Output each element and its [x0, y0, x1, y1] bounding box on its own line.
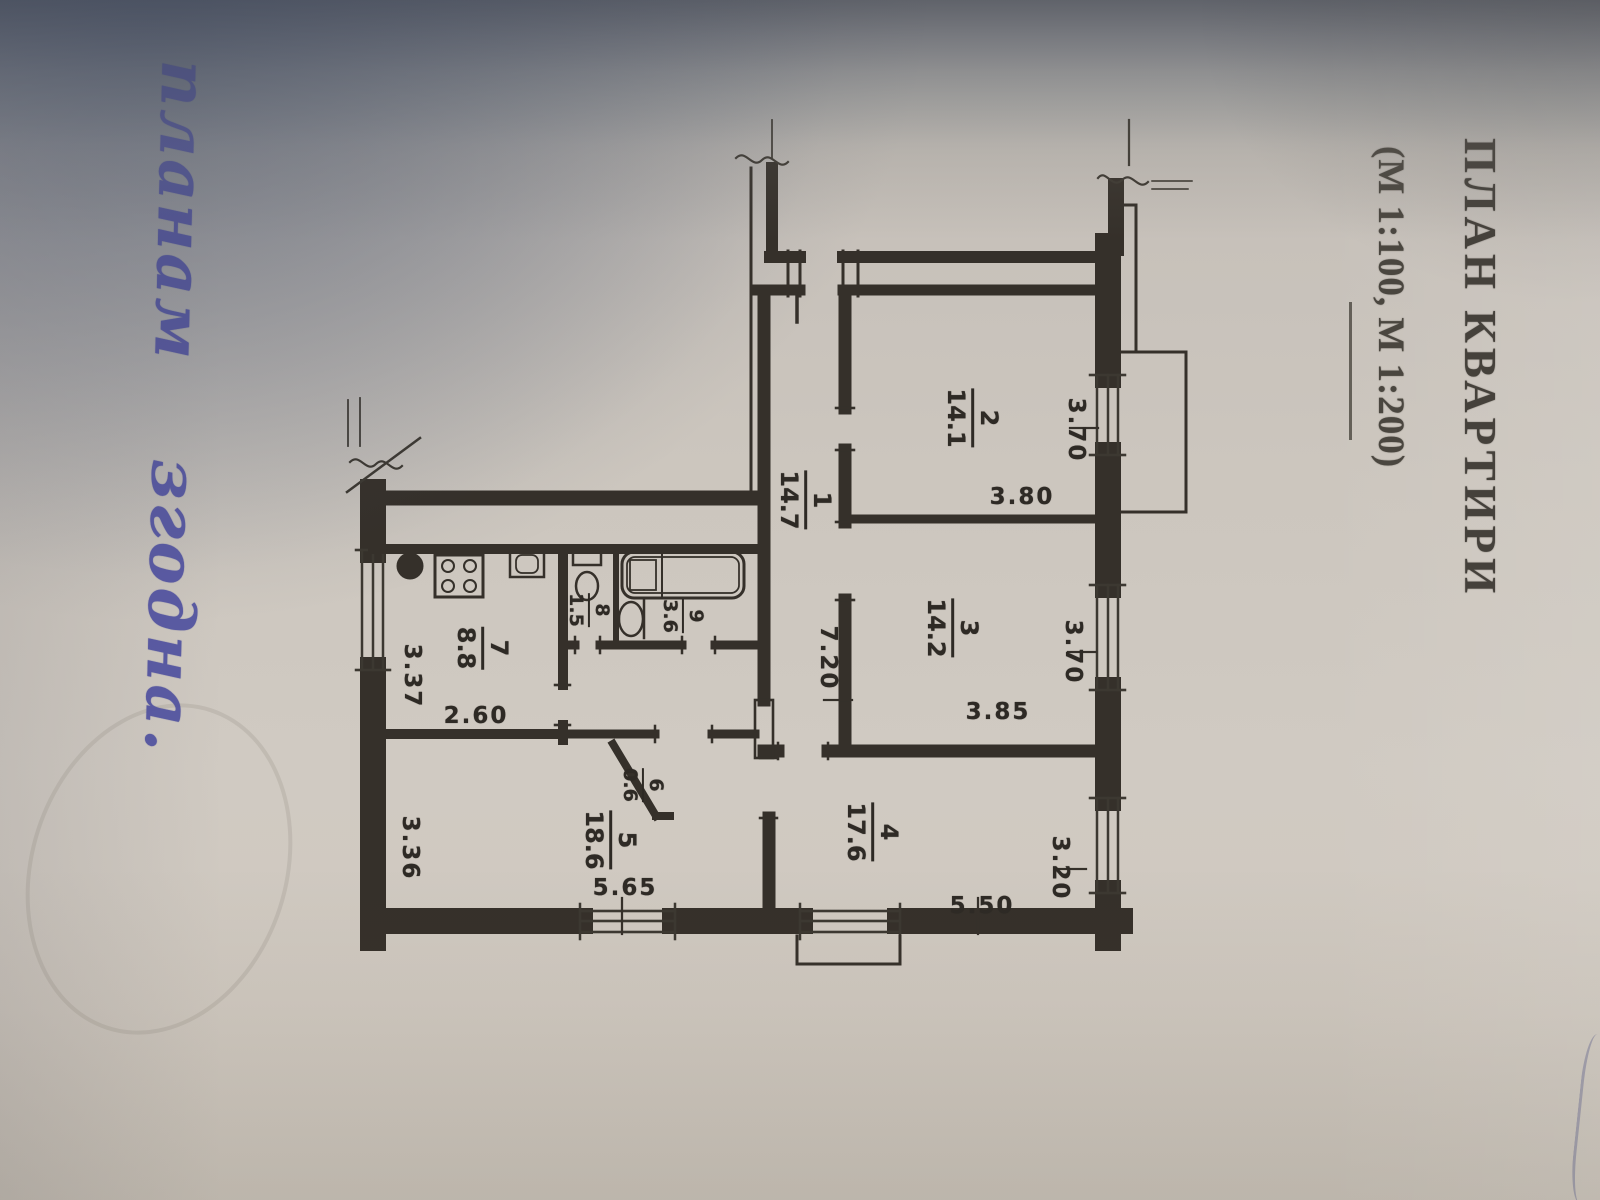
room-label-3: 3 14.2	[923, 598, 981, 657]
room-number: 3	[951, 598, 981, 657]
room-label-wc: 8 1.5	[565, 593, 611, 627]
counter-icon	[510, 551, 544, 577]
room-number: 4	[871, 802, 901, 861]
room-area: 1.5	[565, 593, 588, 627]
room-label-6: 6 0.6	[619, 768, 665, 802]
bathtub-icon	[622, 552, 744, 598]
room-area: 14.1	[943, 388, 971, 447]
room-area: 18.6	[581, 810, 609, 869]
sink-icon	[397, 551, 423, 579]
room-number: 8	[588, 593, 611, 627]
room-label-5: 5 18.6	[581, 810, 639, 869]
room-area: 17.6	[843, 802, 871, 861]
room-area: 0.6	[619, 768, 642, 802]
room-number: 7	[481, 627, 511, 670]
room-area: 3.6	[659, 599, 682, 633]
room-number: 2	[971, 388, 1001, 447]
dim-kitchen-depth: 2.60	[444, 703, 509, 729]
room-label-corridor: 1 14.7	[776, 470, 834, 529]
dim-corridor-length: 7.20	[815, 626, 841, 691]
washbasin-icon	[619, 600, 644, 638]
room-number: 9	[682, 599, 705, 633]
floor-plan-drawing	[0, 0, 1600, 1200]
stove-icon	[435, 555, 483, 597]
room-number: 5	[609, 810, 639, 869]
room-label-2: 2 14.1	[943, 388, 1001, 447]
dim-room2-width: 3.70	[1063, 398, 1089, 463]
dim-kitchen-width: 3.37	[399, 644, 425, 709]
room-label-4: 4 17.6	[843, 802, 901, 861]
room-area: 14.2	[923, 598, 951, 657]
room-label-kitchen: 7 8.8	[453, 627, 511, 670]
dim-room3-width: 3.70	[1060, 620, 1086, 685]
inner-walls	[373, 293, 1095, 910]
dim-room3-depth: 3.85	[966, 699, 1031, 725]
dim-room5-width: 3.36	[397, 816, 423, 881]
dim-room4-depth: 5.50	[950, 893, 1015, 919]
outer-walls	[373, 246, 1120, 938]
room-area: 14.7	[776, 470, 804, 529]
room-number: 6	[642, 768, 665, 802]
room-label-bath: 9 3.6	[659, 599, 705, 633]
dim-room4-width: 3.20	[1047, 836, 1073, 901]
dim-room5-depth: 5.65	[593, 875, 658, 901]
photo-floor-plan-document: ПЛАН КВАРТИРИ (М 1:100, М 1:200)	[0, 0, 1600, 1200]
room-area: 8.8	[453, 627, 481, 670]
document-sheet: ПЛАН КВАРТИРИ (М 1:100, М 1:200)	[0, 0, 1600, 1200]
room-number: 1	[804, 470, 834, 529]
dim-room2-depth: 3.80	[990, 484, 1055, 510]
outer-walls-thin	[368, 168, 1136, 498]
